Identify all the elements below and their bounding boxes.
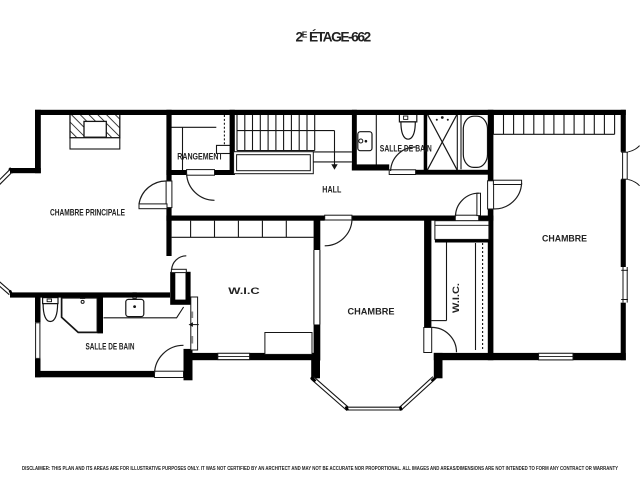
svg-text:SALLE DE BAIN: SALLE DE BAIN [86,342,135,353]
svg-text:W.I.C: W.I.C [228,286,260,297]
svg-text:SALLE DE BAIN: SALLE DE BAIN [380,143,432,154]
svg-text:DISCLAIMER: THIS PLAN AND ITS: DISCLAIMER: THIS PLAN AND ITS AREAS ARE … [22,466,618,472]
svg-text:CHAMBRE PRINCIPALE: CHAMBRE PRINCIPALE [50,207,125,218]
svg-text:CHAMBRE: CHAMBRE [348,307,395,318]
svg-text:W.I.C.: W.I.C. [451,283,462,313]
svg-text:HALL: HALL [322,185,341,196]
svg-text:CHAMBRE: CHAMBRE [542,233,587,244]
svg-text:RANGEMENT: RANGEMENT [177,151,223,162]
